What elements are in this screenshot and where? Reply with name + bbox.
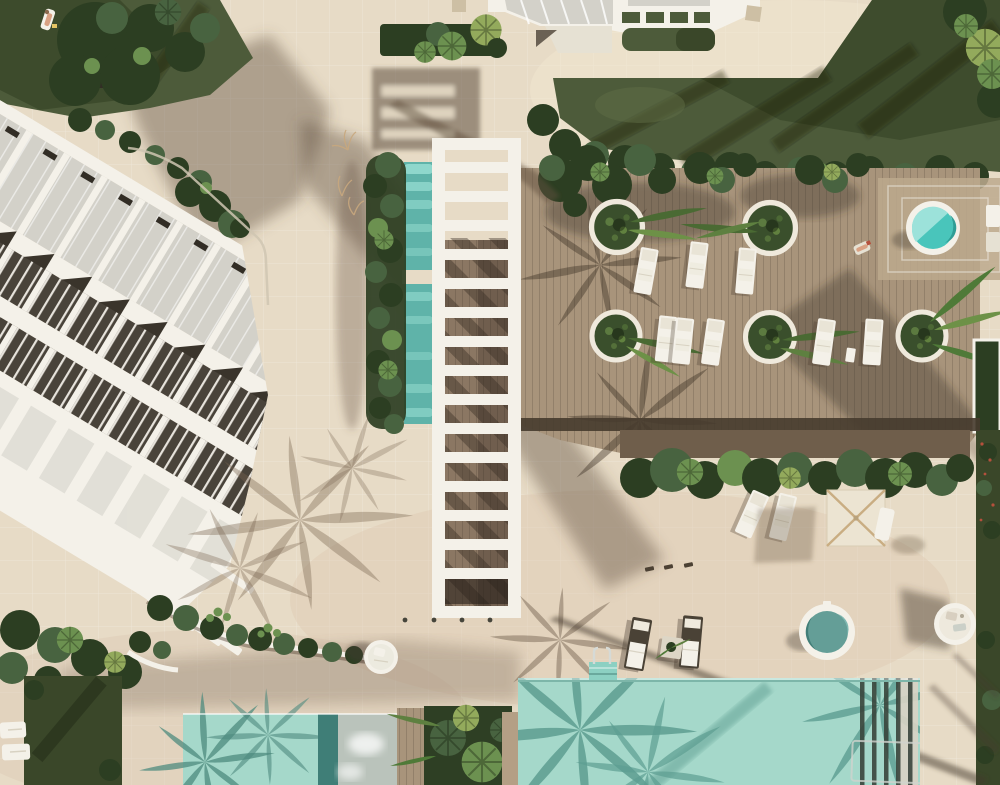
lounger [858,318,883,367]
daybed-cushion [368,644,394,670]
chair-shadow [891,536,925,554]
scene-canvas [0,0,1000,785]
pergola [432,138,521,618]
cloud-reflection-2 [337,764,363,780]
lawn-bottom-left [24,676,122,785]
parasol-shadow [754,507,816,563]
timber-post-left [452,0,466,12]
pergola-slats [432,162,521,579]
hedge-shadow [336,160,368,430]
pergola-ground [433,150,521,606]
planter-1 [592,202,643,253]
planter-2 [745,203,796,254]
lap-pool-area [332,130,435,434]
lap-pool-divider-bridge [402,270,435,284]
pavilion-skylight-2 [628,0,710,6]
cloud-reflection [348,733,384,755]
pool1-side-wall [502,712,518,785]
pergola-bottom-cap [432,606,521,618]
lounger [731,247,757,297]
planter-5 [898,312,946,360]
edge-planter-boxes [974,340,1000,785]
pool2-divider [318,714,338,785]
parasol-pole [853,515,858,520]
planter-3 [592,312,640,360]
planter-4 [746,313,795,362]
aerial-resort-render [0,0,1000,785]
deck-edge-dark-band [520,418,980,431]
timber-post-right [745,5,762,22]
jacuzzi-step-tab [823,601,831,607]
lawn-light-patch [595,87,685,123]
pergola-top-cap [432,138,521,150]
pavilion-grass-shade [676,28,715,51]
lap-pool-hedge [363,152,406,434]
